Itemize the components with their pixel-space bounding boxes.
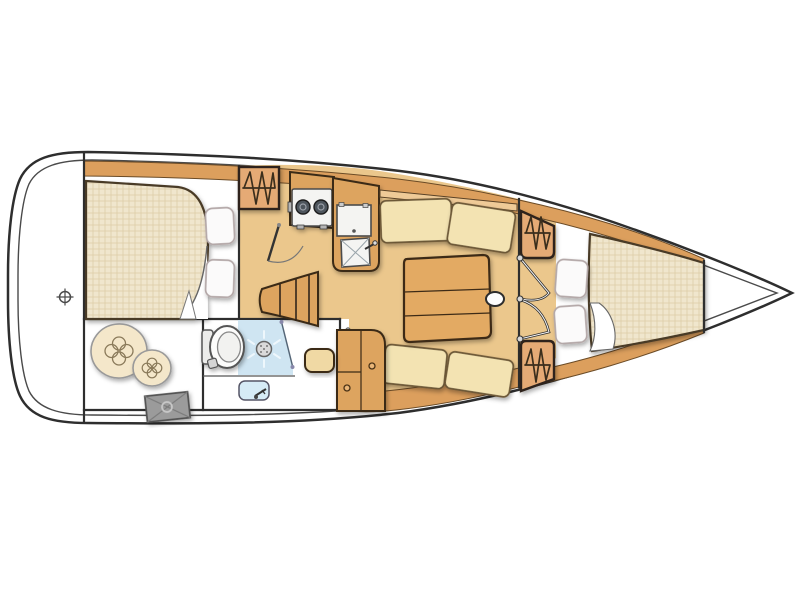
washbasin [239, 381, 269, 400]
pillow [205, 207, 235, 244]
toilet [202, 326, 244, 369]
fender-stowage [133, 350, 171, 386]
port-cabinet [337, 330, 385, 411]
forward-hanging-locker-bottom [521, 341, 554, 391]
burner-icon [314, 200, 328, 214]
pillow [554, 305, 588, 344]
access-hatch [145, 392, 190, 422]
aft-double-berth [86, 181, 208, 319]
pillow [205, 260, 234, 298]
salon-table [404, 255, 491, 342]
knob-icon [369, 363, 375, 369]
aft-hanging-locker [239, 167, 279, 209]
burner-icon [296, 200, 310, 214]
port-settee-cushion [382, 344, 448, 389]
worktop [337, 203, 371, 237]
stool [305, 349, 334, 372]
galley-counter [333, 178, 379, 271]
pillow [555, 259, 589, 298]
floor-plan [0, 0, 800, 600]
starboard-settee-cushion [446, 202, 516, 253]
mast-post [486, 292, 504, 306]
two-burner-stove [288, 189, 336, 229]
starboard-settee-cushion [380, 199, 452, 243]
boat-plan-canvas [0, 0, 800, 600]
knob-icon [344, 385, 350, 391]
shower-head-icon [257, 342, 272, 357]
